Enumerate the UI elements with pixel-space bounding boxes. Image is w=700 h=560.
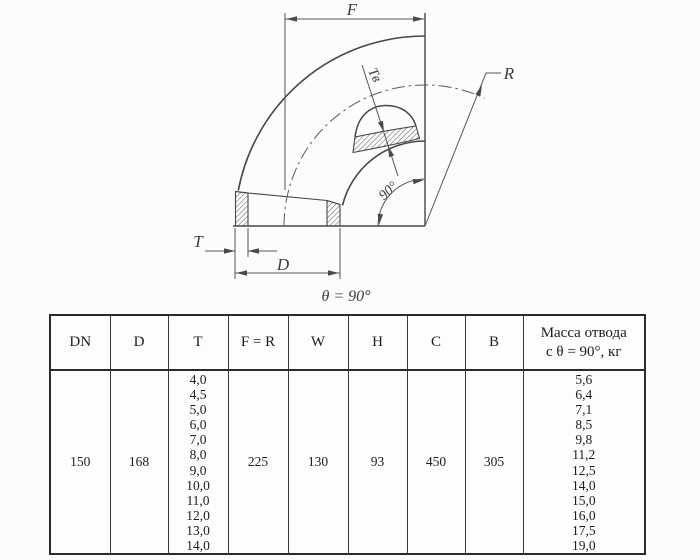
dim-label-f: F xyxy=(346,0,358,19)
cell-dn: 150 xyxy=(50,370,110,554)
dimension-f xyxy=(285,13,425,190)
mid-section xyxy=(353,106,420,153)
diagram-caption: θ = 90° xyxy=(321,288,371,305)
col-header-c: C xyxy=(407,315,465,370)
dim-label-d: D xyxy=(276,255,290,274)
page: F R Tв 90° T xyxy=(0,0,700,560)
left-wall-hatch xyxy=(236,192,249,227)
col-header-d: D xyxy=(110,315,168,370)
dimension-tv xyxy=(362,65,398,176)
outer-arc xyxy=(238,36,425,191)
cell-h: 93 xyxy=(348,370,407,554)
dimension-t xyxy=(205,228,277,279)
r-leader-line xyxy=(425,73,501,226)
col-header-dn: DN xyxy=(50,315,110,370)
elbow-diagram: F R Tв 90° T xyxy=(0,0,700,312)
cell-c: 450 xyxy=(407,370,465,554)
cell-w: 130 xyxy=(288,370,348,554)
tv-leader-line xyxy=(362,65,398,176)
col-header-w: W xyxy=(288,315,348,370)
spec-table: DN D T F = R W H C B Масса отвода с θ = … xyxy=(49,314,646,555)
right-wall-hatch xyxy=(327,201,340,227)
dimension-r xyxy=(425,73,501,226)
cell-b: 305 xyxy=(465,370,523,554)
table-row: 150 168 4,0 4,5 5,0 6,0 7,0 8,0 9,0 10,0… xyxy=(50,370,645,554)
angle-label: 90° xyxy=(376,179,401,204)
cell-mass-values: 5,6 6,4 7,1 8,5 9,8 11,2 12,5 14,0 15,0 … xyxy=(523,370,645,554)
col-header-mass: Масса отвода с θ = 90°, кг xyxy=(523,315,645,370)
dim-label-t: T xyxy=(193,232,204,251)
cell-d: 168 xyxy=(110,370,168,554)
cell-t-values: 4,0 4,5 5,0 6,0 7,0 8,0 9,0 10,0 11,0 12… xyxy=(168,370,228,554)
dim-label-r: R xyxy=(503,64,515,83)
col-header-b: B xyxy=(465,315,523,370)
cell-fr: 225 xyxy=(228,370,288,554)
col-header-h: H xyxy=(348,315,407,370)
col-header-t: T xyxy=(168,315,228,370)
header-row: DN D T F = R W H C B Масса отвода с θ = … xyxy=(50,315,645,370)
col-header-fr: F = R xyxy=(228,315,288,370)
